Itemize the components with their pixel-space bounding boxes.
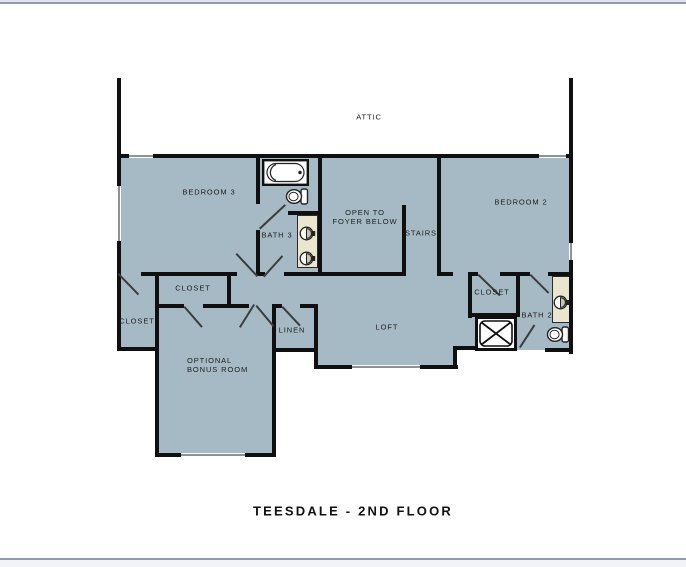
room-label-bedroom2: BEDROOM 2 (494, 198, 547, 207)
sink-icon (299, 250, 316, 267)
wall-segment (284, 272, 406, 276)
wall-segment (155, 304, 184, 308)
room-label-stairs: STAIRS (405, 229, 437, 238)
wall-segment (468, 272, 472, 318)
floor-plan: ATTIC BEDROOM 3 BATH 3 OPEN TO FOYER BEL… (0, 0, 686, 567)
window-marker (118, 186, 120, 241)
plan-caption: TEESDALE - 2ND FLOOR (253, 504, 453, 519)
wall-segment (203, 304, 249, 308)
room-label-attic: ATTIC (356, 113, 382, 122)
x-box-marker (475, 316, 517, 351)
wall-segment (402, 205, 406, 276)
wall-segment (117, 78, 121, 158)
toilet-icon (546, 325, 570, 344)
room-label-closet-bonus: CLOSET (175, 284, 210, 293)
room-label-closet-bedroom2: CLOSET (474, 288, 509, 297)
page-top-edge-line (0, 2, 686, 4)
window-marker (570, 243, 572, 260)
wall-segment (155, 272, 159, 457)
room-label-bath2: BATH 2 (521, 311, 552, 320)
sink-icon (553, 294, 570, 311)
floor-area-loft (316, 274, 456, 367)
wall-segment (227, 272, 231, 308)
window-marker (129, 155, 153, 157)
window-marker (539, 155, 566, 157)
room-label-bonus-room: OPTIONAL BONUS ROOM (187, 356, 248, 374)
wall-segment (500, 272, 530, 276)
toilet-icon (285, 187, 309, 206)
room-label-open-to-foyer: OPEN TO FOYER BELOW (333, 208, 398, 226)
floor-area-closet-left (119, 274, 157, 349)
room-label-bath3: BATH 3 (261, 231, 292, 240)
wall-segment (256, 230, 260, 276)
wall-segment (437, 272, 453, 276)
wall-segment (272, 348, 318, 352)
window-marker (181, 454, 245, 456)
room-label-bedroom3: BEDROOM 3 (182, 188, 235, 197)
floor-area-linen (274, 274, 316, 350)
wall-segment (117, 154, 573, 158)
wall-segment (318, 154, 322, 276)
wall-segment (569, 78, 573, 158)
wall-segment (548, 272, 573, 276)
wall-segment (453, 347, 457, 369)
sink-icon (299, 225, 316, 242)
wall-segment (256, 154, 260, 204)
wall-segment (545, 348, 573, 352)
room-label-loft: LOFT (376, 323, 399, 332)
wall-segment (437, 154, 441, 276)
room-label-closet-bedroom3: CLOSET (119, 317, 154, 326)
bathtub-icon (262, 159, 309, 186)
wall-segment (314, 304, 318, 369)
room-label-linen: LINEN (279, 326, 306, 335)
wall-segment (516, 272, 520, 317)
wall-segment (117, 347, 159, 351)
window-marker (352, 366, 420, 368)
page-bottom-edge (0, 560, 686, 567)
wall-segment (288, 211, 318, 215)
